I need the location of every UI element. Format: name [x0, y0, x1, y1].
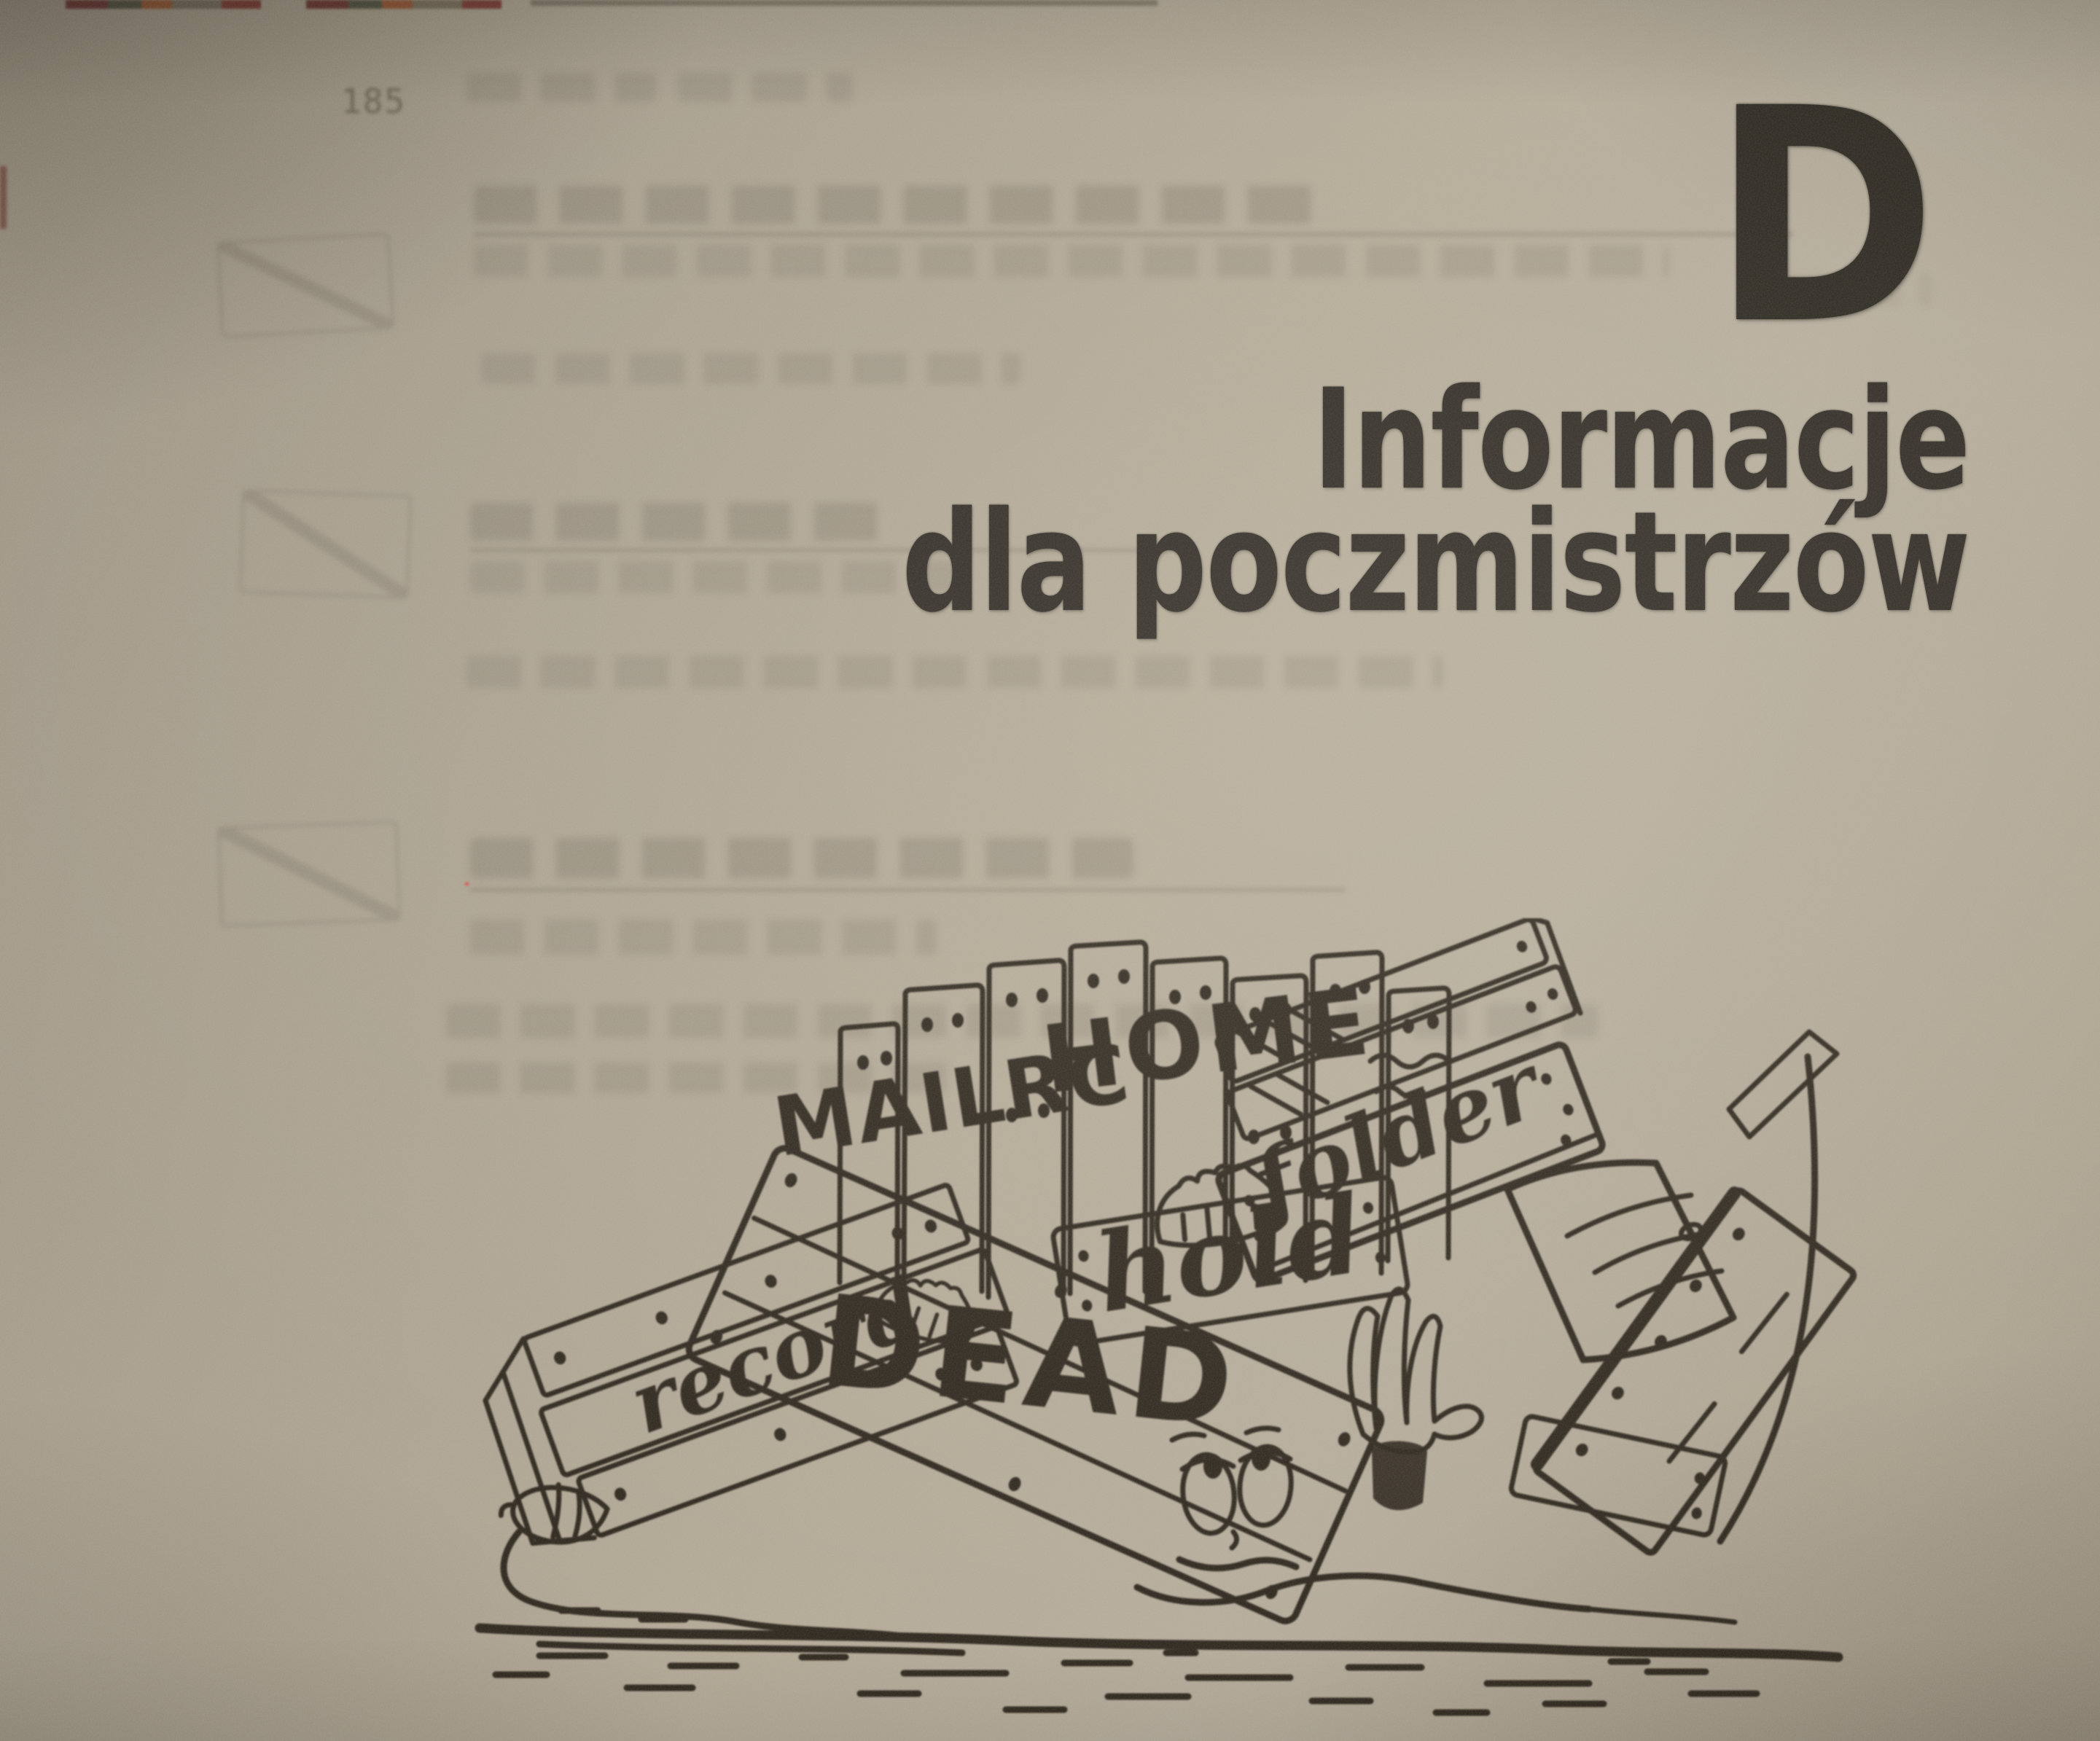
- creature-raised-hand: [1350, 1289, 1482, 1510]
- creature-mouth: [1179, 1560, 1296, 1568]
- ghost-envelope-icon: [217, 821, 402, 928]
- ghost-subtext-line: [470, 561, 959, 593]
- photo-background-top-edge: [66, 0, 532, 9]
- appendix-letter: D: [1711, 70, 1937, 365]
- ghost-envelope-icon: [239, 489, 413, 599]
- ghost-rule: [470, 888, 1345, 892]
- ground-hatching: [480, 1611, 1838, 1713]
- photo-top-smudge: [531, 0, 1158, 6]
- ghost-header-text: [678, 73, 853, 102]
- grain-board: [1507, 1162, 1733, 1360]
- ghost-rule: [474, 232, 1793, 237]
- ghost-envelope-icon: [216, 232, 395, 338]
- sign-label-hold: hold: [1088, 1170, 1371, 1337]
- envelope-diagonal: [219, 235, 391, 335]
- ghost-paragraph-line: [467, 656, 1443, 688]
- ghost-subtext-line: [474, 245, 1669, 277]
- creature-nose: [1232, 1532, 1237, 1548]
- tilted-plank-right: [1534, 1189, 1856, 1555]
- postmaster-illustration: MAILRC HOME: [452, 918, 1881, 1720]
- photo-left-edge-speck: [0, 166, 7, 229]
- ghost-header-text: [467, 73, 656, 102]
- ghost-heading-line: [470, 838, 1133, 878]
- envelope-diagonal: [220, 823, 398, 924]
- book-page-photo: 185 D Informacje dla poczmistrzów: [0, 0, 2100, 1741]
- sign-label-home: HOME: [1037, 967, 1379, 1115]
- envelope-diagonal: [242, 492, 410, 596]
- ghost-heading-line: [470, 503, 878, 541]
- crate-contour: [1720, 1057, 1815, 1541]
- paper-fleck: [464, 882, 469, 886]
- chapter-title-line2: dla poczmistrzów: [902, 501, 1970, 624]
- ghost-page-number: 185: [341, 82, 406, 121]
- corner-sliver: [1729, 1032, 1837, 1137]
- chapter-title: Informacje dla poczmistrzów: [902, 379, 1970, 624]
- ghost-heading-line: [474, 186, 1312, 224]
